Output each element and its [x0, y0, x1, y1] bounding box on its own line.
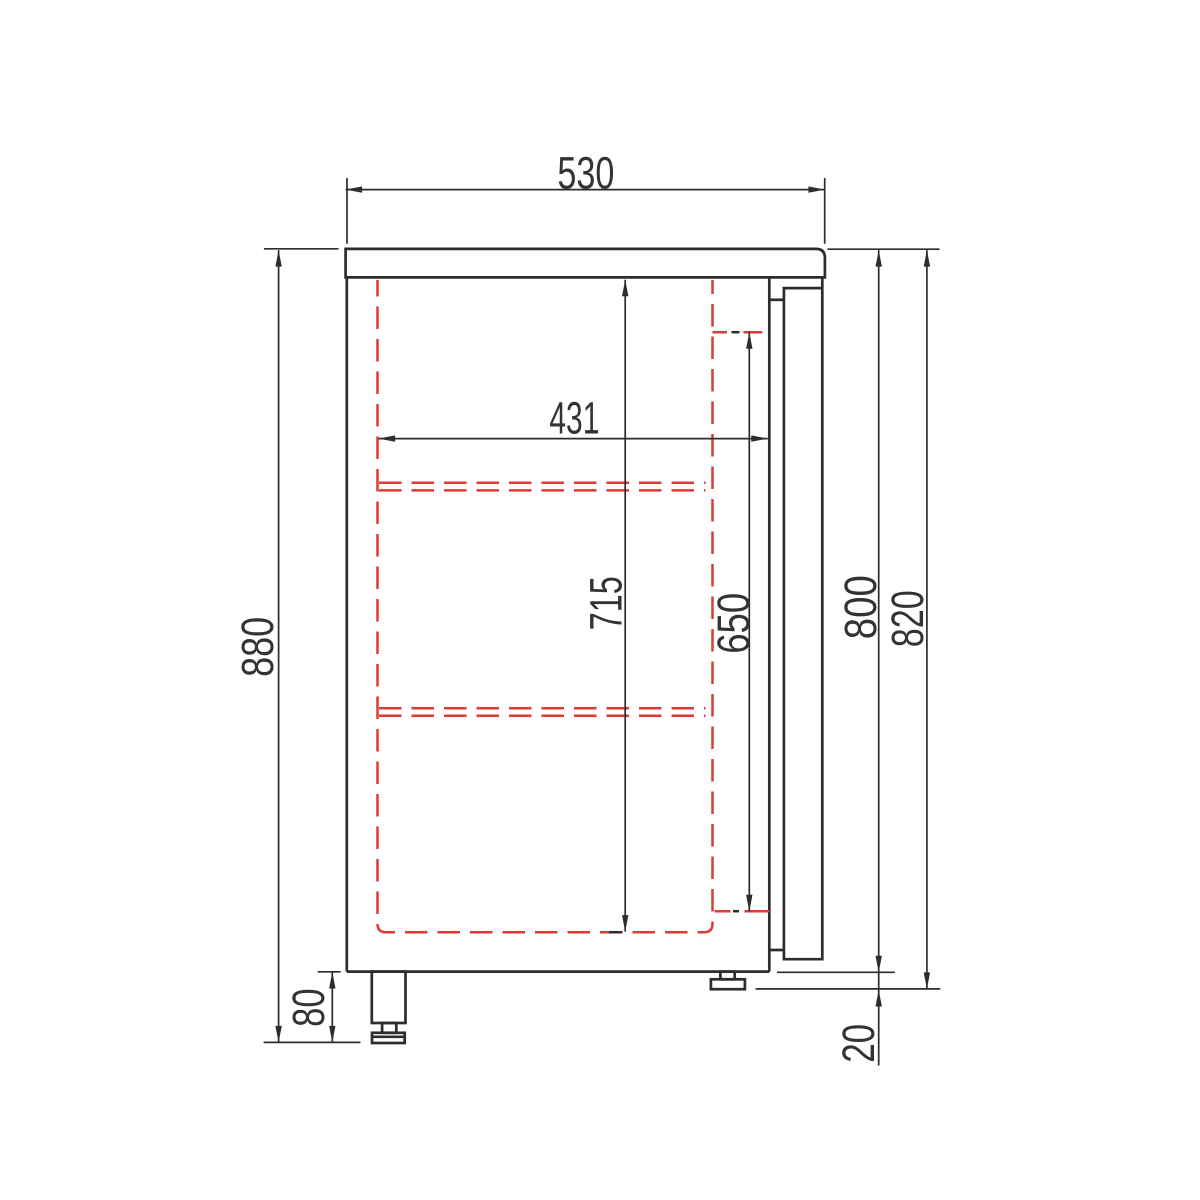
- svg-text:880: 880: [232, 617, 283, 677]
- svg-text:530: 530: [557, 148, 614, 199]
- svg-text:820: 820: [882, 590, 933, 647]
- svg-text:650: 650: [708, 593, 759, 654]
- svg-text:715: 715: [581, 576, 632, 630]
- svg-text:80: 80: [283, 988, 334, 1027]
- svg-text:431: 431: [549, 393, 599, 444]
- svg-text:20: 20: [833, 1024, 884, 1063]
- svg-text:800: 800: [835, 575, 886, 639]
